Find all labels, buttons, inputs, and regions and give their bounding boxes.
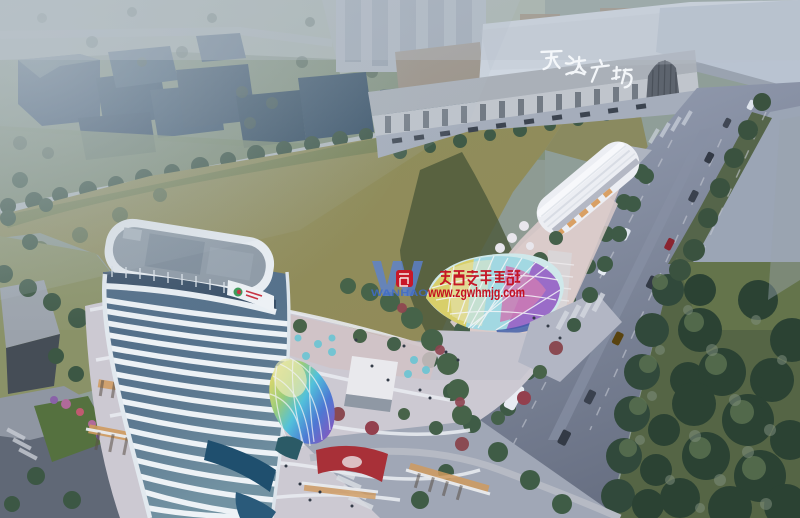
svg-text:WANHAO: WANHAO [371,288,428,298]
svg-text:www.zgwhmjg.com: www.zgwhmjg.com [427,285,525,300]
